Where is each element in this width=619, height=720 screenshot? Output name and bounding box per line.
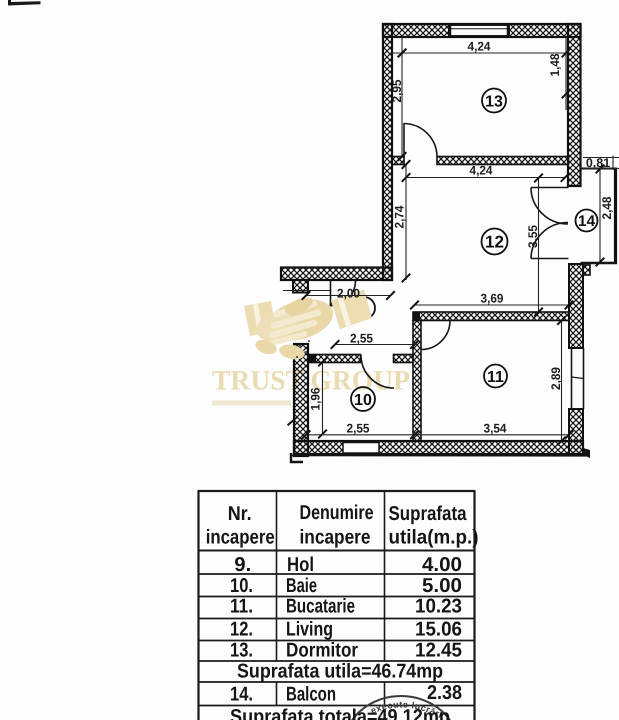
svg-text:15.06: 15.06 xyxy=(415,619,462,641)
svg-text:2,95: 2,95 xyxy=(390,79,404,102)
svg-text:3,69: 3,69 xyxy=(481,292,504,306)
svg-text:12.45: 12.45 xyxy=(415,640,462,662)
svg-text:14.: 14. xyxy=(230,684,253,706)
svg-text:4,24: 4,24 xyxy=(468,40,491,54)
svg-text:12.: 12. xyxy=(230,619,253,641)
svg-text:Living: Living xyxy=(286,619,333,641)
svg-text:Baie: Baie xyxy=(286,575,317,597)
svg-text:11.: 11. xyxy=(230,596,253,618)
svg-text:2,55: 2,55 xyxy=(350,332,373,346)
svg-text:Bucatarie: Bucatarie xyxy=(286,596,355,618)
svg-text:Balcon: Balcon xyxy=(286,684,336,706)
svg-text:5.00: 5.00 xyxy=(422,575,462,597)
svg-text:2.38: 2.38 xyxy=(427,682,462,704)
svg-text:13.: 13. xyxy=(230,640,253,662)
svg-text:12: 12 xyxy=(485,233,504,252)
svg-text:0,81: 0,81 xyxy=(586,156,610,170)
svg-text:Denumire: Denumire xyxy=(300,502,374,524)
svg-text:incapere: incapere xyxy=(206,527,275,549)
svg-text:2,55: 2,55 xyxy=(347,422,370,436)
svg-text:10: 10 xyxy=(354,392,372,409)
svg-text:2,74: 2,74 xyxy=(393,205,407,228)
svg-text:3,55: 3,55 xyxy=(526,225,540,248)
svg-text:14: 14 xyxy=(578,213,596,230)
svg-text:Dormitor: Dormitor xyxy=(286,640,358,662)
svg-text:4.00: 4.00 xyxy=(422,554,462,576)
svg-text:incapere: incapere xyxy=(300,527,371,549)
svg-text:utila(m.p.): utila(m.p.) xyxy=(389,527,479,549)
svg-text:Hol: Hol xyxy=(287,554,314,576)
svg-text:2,89: 2,89 xyxy=(549,367,563,390)
svg-text:10.: 10. xyxy=(230,575,253,597)
svg-text:Suprafata utila=46.74mp: Suprafata utila=46.74mp xyxy=(237,661,443,683)
svg-text:3,54: 3,54 xyxy=(484,422,507,436)
svg-text:2,48: 2,48 xyxy=(600,196,614,219)
svg-text:11: 11 xyxy=(487,369,504,386)
svg-text:1,96: 1,96 xyxy=(309,387,323,410)
svg-text:1,48: 1,48 xyxy=(548,53,562,76)
svg-text:4,24: 4,24 xyxy=(470,164,493,178)
svg-text:Suprafata totala=49.12mp: Suprafata totala=49.12mp xyxy=(230,706,450,720)
svg-text:10.23: 10.23 xyxy=(415,596,462,618)
svg-text:13: 13 xyxy=(485,93,503,110)
svg-text:2,00: 2,00 xyxy=(337,287,360,301)
svg-text:Nr.: Nr. xyxy=(228,503,252,525)
svg-text:9.: 9. xyxy=(234,554,251,576)
svg-text:Suprafata: Suprafata xyxy=(389,503,468,525)
